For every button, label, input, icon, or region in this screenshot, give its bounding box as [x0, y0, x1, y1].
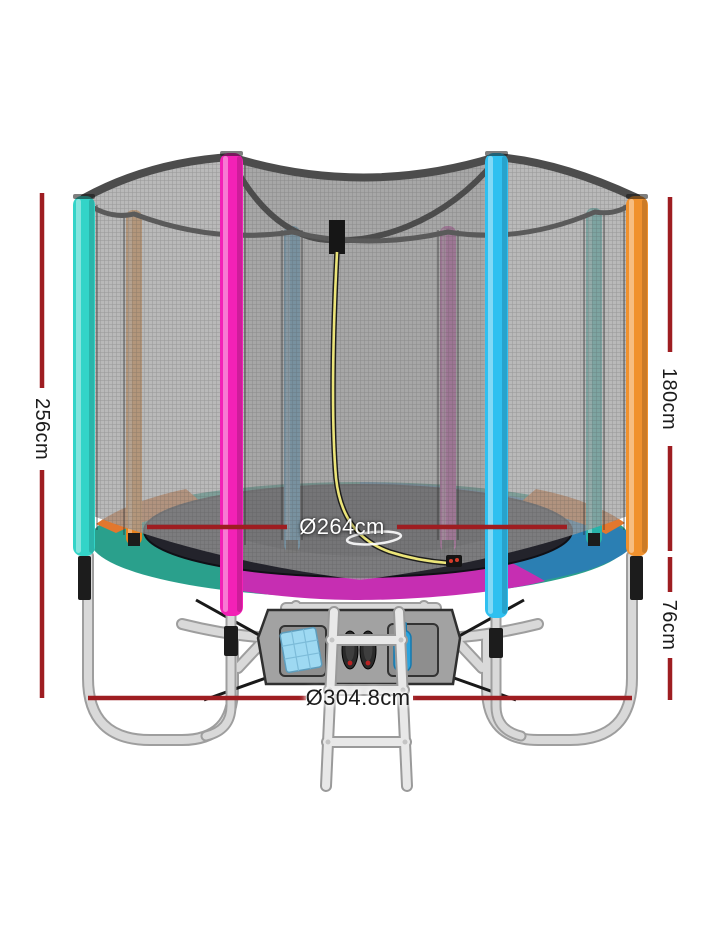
net-door-tab: [329, 220, 345, 254]
trampoline-illustration: [0, 0, 720, 928]
net-pole-teal-left: [73, 194, 95, 600]
frame-height-label: 76cm: [659, 600, 679, 651]
mat-diameter-label: Ø264cm: [299, 516, 385, 538]
net-height-label: 180cm: [659, 368, 679, 430]
net-pole-cyan-front: [485, 151, 508, 618]
total-height-label: 256cm: [32, 398, 52, 460]
zipper-pull: [446, 555, 462, 567]
outer-diameter-label: Ø304.8cm: [306, 687, 411, 709]
towel: [280, 627, 322, 673]
net-pole-magenta-front: [220, 151, 243, 616]
product-diagram: 256cm 180cm 76cm Ø264cm Ø304.8cm: [0, 0, 720, 928]
net-pole-orange-right: [626, 194, 648, 600]
